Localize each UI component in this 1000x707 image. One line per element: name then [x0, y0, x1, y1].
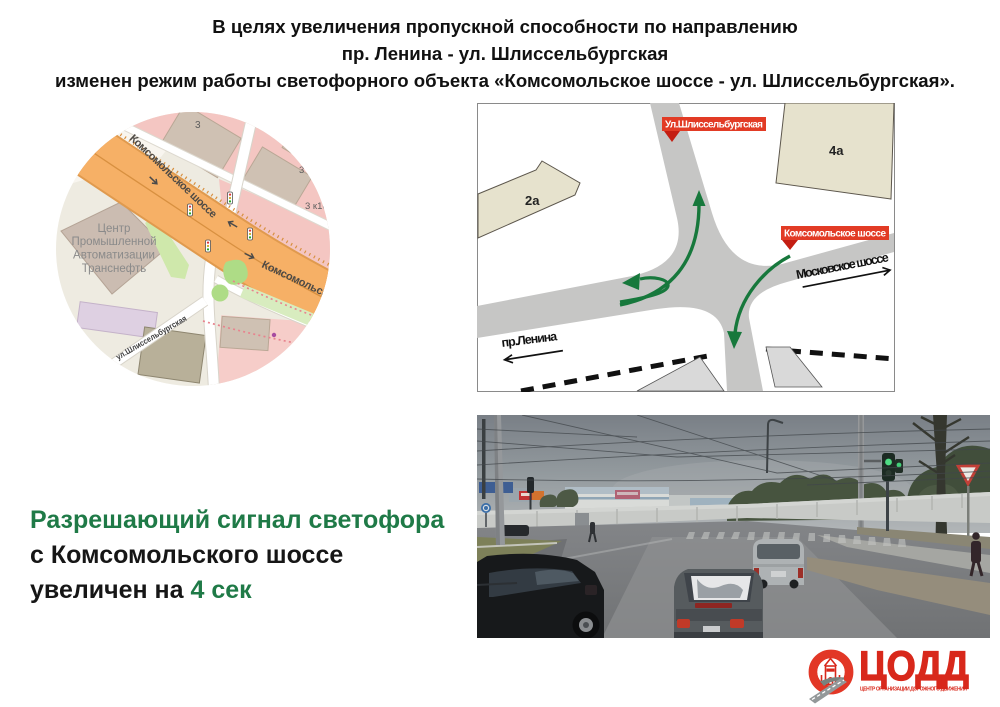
svg-text:Комсомольское шоссе: Комсомольское шоссе: [784, 229, 886, 240]
svg-text:3 к16: 3 к16: [305, 201, 328, 212]
svg-text:Транснефть: Транснефть: [82, 263, 147, 275]
svg-text:Ул.Шлиссельбургская: Ул.Шлиссельбургская: [665, 119, 763, 131]
svg-text:Центр: Центр: [98, 223, 131, 235]
svg-text:2а: 2а: [525, 193, 540, 208]
svg-text:3 к: 3 к: [299, 165, 312, 176]
svg-text:Автоматизации: Автоматизации: [73, 250, 155, 262]
svg-text:ЦЕНТР ОРГАНИЗАЦИИ ДОРОЖНОГО ДВ: ЦЕНТР ОРГАНИЗАЦИИ ДОРОЖНОГО ДВИЖЕНИЯ: [860, 687, 967, 693]
svg-text:3: 3: [195, 120, 201, 131]
svg-text:4а: 4а: [829, 143, 844, 158]
svg-text:ЦОДД: ЦОДД: [859, 642, 969, 689]
svg-text:Промышленной: Промышленной: [71, 236, 156, 248]
